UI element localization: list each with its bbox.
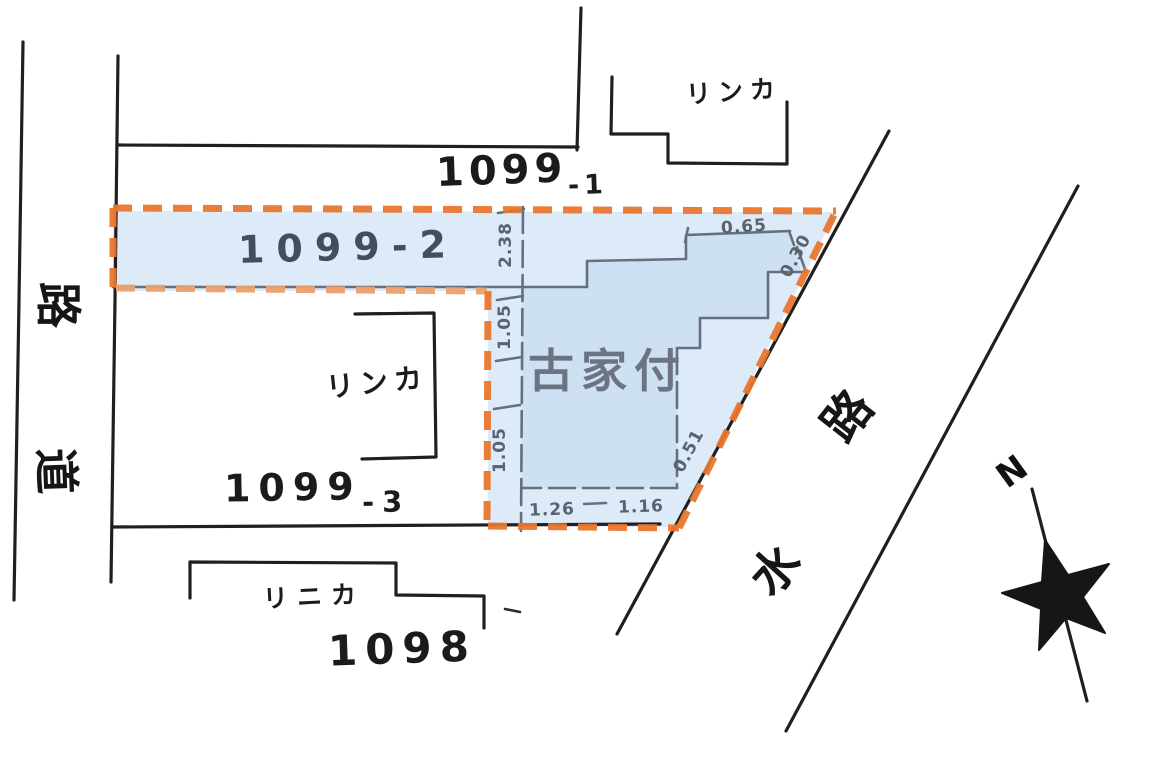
dimension-2-38: 2.38 xyxy=(496,217,516,273)
building-note-bottom: リニカ xyxy=(262,581,365,611)
compass-star-icon xyxy=(1002,540,1109,650)
road-label-char-do: 道 xyxy=(25,447,93,495)
dimension-0-65: 0.65 xyxy=(715,215,772,239)
parcel-1099-3-branch: -3 xyxy=(362,487,411,517)
parcel-label-1099-2: 1099-2 xyxy=(238,225,459,269)
dimension-1-05-lower: 1.05 xyxy=(490,422,510,478)
parcel-label-1099-3: 1099-3 xyxy=(224,466,411,507)
parcel-label-1099-1: 1099-1 xyxy=(435,147,608,193)
cadastral-map: 1099-1 1099-2 1099-3 1098 古家付 リンカ リンカ リニ… xyxy=(0,0,1153,765)
parcel-1099-3-number: 1099 xyxy=(224,464,363,510)
building-note-top: リンカ xyxy=(685,76,783,108)
compass xyxy=(1002,489,1109,701)
parcel-1099-1-branch: -1 xyxy=(567,171,608,199)
parcel-1099-1-number: 1099 xyxy=(435,145,568,196)
parcel-label-1098: 1098 xyxy=(327,625,477,672)
old-house-note: 古家付 xyxy=(528,348,687,394)
dimension-1-26: 1.26 xyxy=(524,499,581,521)
road-label-char-ro: 路 xyxy=(28,282,94,328)
dimension-1-16: 1.16 xyxy=(613,496,670,518)
dimension-1-05-upper: 1.05 xyxy=(495,299,515,355)
